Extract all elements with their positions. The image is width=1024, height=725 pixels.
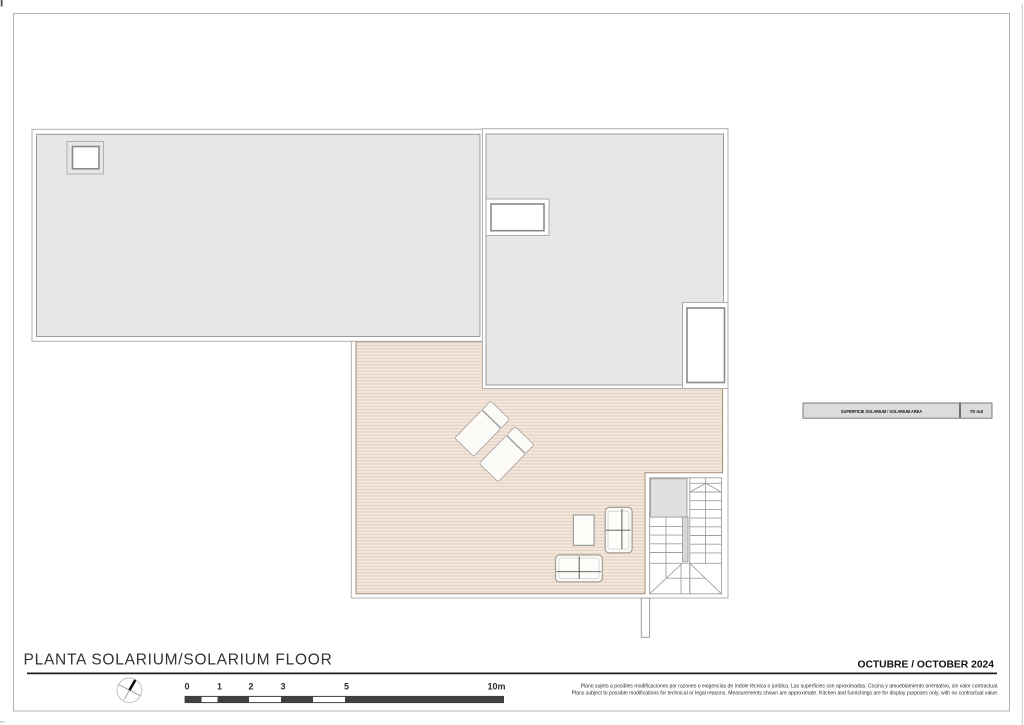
svg-text:Plans subject to possible modi: Plans subject to possible modifications … — [572, 691, 999, 697]
svg-text:Plano sujeto a posibles modifi: Plano sujeto a posibles modificaciones p… — [581, 683, 999, 689]
svg-text:3: 3 — [280, 682, 285, 692]
svg-text:0: 0 — [184, 682, 189, 692]
svg-text:10m: 10m — [487, 682, 505, 692]
svg-text:1: 1 — [217, 682, 222, 692]
svg-text:PLANTA SOLARIUM/SOLARIUM FLOOR: PLANTA SOLARIUM/SOLARIUM FLOOR — [24, 652, 333, 669]
svg-text:SUPERFICIE SOLARIUM / SOLARIUM: SUPERFICIE SOLARIUM / SOLARIUM AREA — [841, 409, 923, 415]
svg-text:OCTUBRE / OCTOBER 2024: OCTUBRE / OCTOBER 2024 — [857, 660, 994, 671]
svg-text:70 m2: 70 m2 — [970, 409, 984, 415]
svg-text:5: 5 — [344, 682, 349, 692]
svg-text:2: 2 — [248, 682, 253, 692]
